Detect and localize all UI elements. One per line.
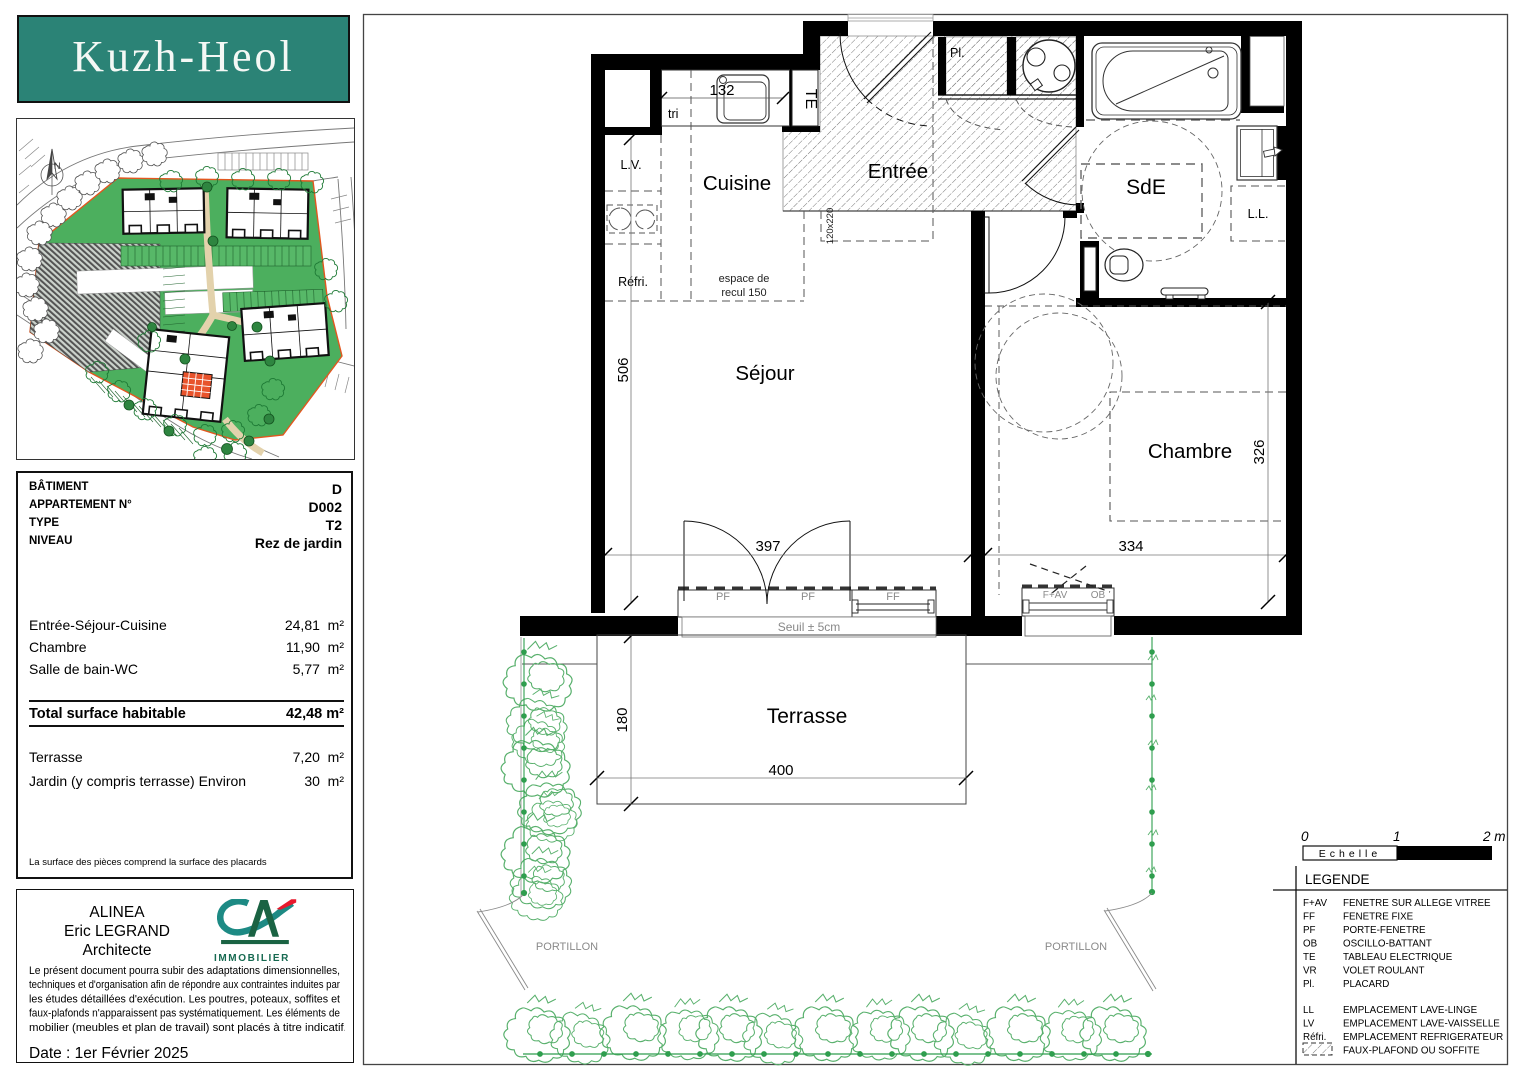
- svg-text:TABLEAU ELECTRIQUE: TABLEAU ELECTRIQUE: [1343, 952, 1453, 963]
- svg-text:F+AV: F+AV: [1043, 590, 1068, 601]
- svg-text:Echelle: Echelle: [1319, 848, 1381, 860]
- svg-text:OSCILLO-BATTANT: OSCILLO-BATTANT: [1343, 939, 1432, 950]
- svg-text:EMPLACEMENT LAVE-VAISSELLE: EMPLACEMENT LAVE-VAISSELLE: [1343, 1019, 1500, 1030]
- svg-text:espace de: espace de: [719, 273, 770, 285]
- svg-text:LL: LL: [1303, 1005, 1314, 1016]
- svg-text:Entrée: Entrée: [868, 160, 928, 183]
- svg-text:EMPLACEMENT LAVE-LINGE: EMPLACEMENT LAVE-LINGE: [1343, 1005, 1478, 1016]
- svg-text:2 m: 2 m: [1482, 829, 1506, 844]
- svg-text:Seuil ± 5cm: Seuil ± 5cm: [778, 620, 841, 634]
- svg-text:L.L.: L.L.: [1248, 207, 1269, 221]
- svg-text:PORTE-FENETRE: PORTE-FENETRE: [1343, 925, 1426, 936]
- svg-text:180: 180: [614, 707, 631, 732]
- svg-text:506: 506: [615, 357, 632, 382]
- svg-text:1: 1: [1393, 829, 1401, 844]
- svg-text:Chambre: Chambre: [1148, 440, 1232, 463]
- svg-text:Pl.: Pl.: [1303, 979, 1314, 990]
- svg-text:326: 326: [1251, 439, 1268, 464]
- svg-text:Pl.: Pl.: [950, 46, 965, 60]
- svg-text:TE: TE: [1303, 952, 1316, 963]
- svg-text:Réfri.: Réfri.: [1303, 1032, 1326, 1043]
- svg-text:SdE: SdE: [1126, 176, 1166, 199]
- svg-text:VR: VR: [1303, 966, 1317, 977]
- svg-text:TE: TE: [802, 89, 819, 109]
- svg-text:PF: PF: [1303, 925, 1316, 936]
- svg-text:PF: PF: [801, 591, 815, 603]
- svg-text:PORTILLON: PORTILLON: [1045, 941, 1107, 953]
- svg-text:FENETRE FIXE: FENETRE FIXE: [1343, 912, 1414, 923]
- svg-text:F+AV: F+AV: [1303, 898, 1328, 909]
- svg-text:FAUX-PLAFOND OU SOFFITE: FAUX-PLAFOND OU SOFFITE: [1343, 1046, 1480, 1057]
- svg-text:Réfri.: Réfri.: [618, 275, 648, 289]
- svg-text:Terrasse: Terrasse: [767, 705, 848, 728]
- svg-text:LEGENDE: LEGENDE: [1305, 872, 1370, 887]
- svg-text:LV: LV: [1303, 1019, 1315, 1030]
- svg-text:Séjour: Séjour: [735, 362, 794, 385]
- svg-text:Cuisine: Cuisine: [703, 172, 771, 195]
- svg-text:FF: FF: [1303, 912, 1315, 923]
- svg-text:400: 400: [768, 762, 793, 779]
- svg-text:tri: tri: [668, 107, 678, 121]
- svg-text:FF: FF: [886, 591, 900, 603]
- svg-text:132: 132: [709, 82, 734, 99]
- svg-text:334: 334: [1118, 538, 1143, 555]
- svg-text:OB: OB: [1303, 939, 1318, 950]
- svg-text:EMPLACEMENT REFRIGERATEUR: EMPLACEMENT REFRIGERATEUR: [1343, 1032, 1503, 1043]
- svg-text:VOLET ROULANT: VOLET ROULANT: [1343, 966, 1424, 977]
- svg-text:397: 397: [755, 538, 780, 555]
- svg-text:120x220: 120x220: [825, 208, 836, 244]
- svg-text:recul 150: recul 150: [721, 287, 766, 299]
- svg-text:0: 0: [1301, 829, 1309, 844]
- svg-text:OB: OB: [1091, 590, 1106, 601]
- svg-text:PORTILLON: PORTILLON: [536, 941, 598, 953]
- svg-text:PF: PF: [716, 591, 730, 603]
- svg-text:FENETRE SUR ALLEGE VITREE: FENETRE SUR ALLEGE VITREE: [1343, 898, 1491, 909]
- svg-text:PLACARD: PLACARD: [1343, 979, 1389, 990]
